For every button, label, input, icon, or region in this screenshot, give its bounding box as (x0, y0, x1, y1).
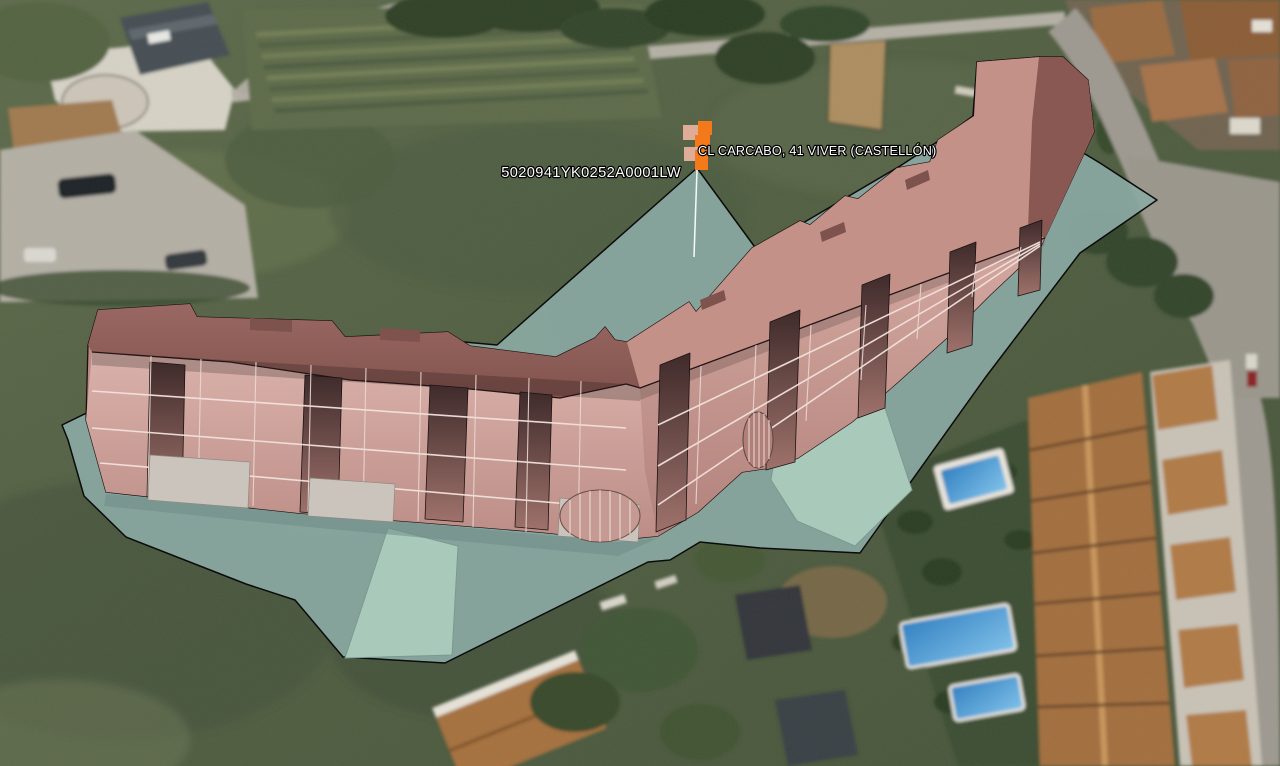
balcony-cylinder (743, 412, 773, 468)
map-viewport[interactable]: CL CARCABO, 41 VIVER (CASTELLÓN) 5020941… (0, 0, 1280, 766)
balcony-cylinder (560, 490, 640, 542)
cadastral-reference-label: 5020941YK0252A0001LW (501, 165, 681, 181)
address-label[interactable]: CL CARCABO, 41 VIVER (CASTELLÓN) (698, 143, 936, 158)
